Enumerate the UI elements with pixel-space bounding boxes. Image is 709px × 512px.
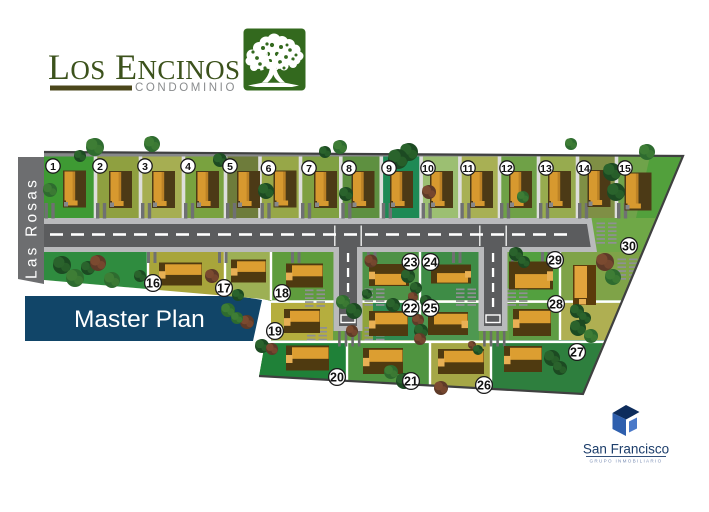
svg-text:11: 11	[462, 163, 473, 175]
svg-text:24: 24	[424, 256, 438, 270]
svg-text:30: 30	[622, 240, 636, 254]
svg-text:12: 12	[501, 163, 513, 175]
svg-text:Master Plan: Master Plan	[74, 306, 205, 333]
svg-text:25: 25	[424, 302, 438, 316]
svg-text:15: 15	[619, 163, 631, 175]
svg-text:LOS ENCINOS: LOS ENCINOS	[48, 47, 240, 87]
svg-text:1: 1	[50, 161, 56, 173]
svg-text:5: 5	[227, 161, 233, 173]
svg-text:7: 7	[306, 163, 312, 175]
svg-text:San Francisco: San Francisco	[583, 442, 669, 457]
svg-text:23: 23	[404, 256, 418, 270]
svg-text:17: 17	[217, 282, 231, 296]
svg-text:19: 19	[268, 325, 282, 339]
svg-text:13: 13	[540, 163, 552, 175]
svg-text:28: 28	[549, 298, 563, 312]
svg-text:9: 9	[386, 163, 392, 175]
svg-text:21: 21	[404, 375, 418, 389]
svg-text:29: 29	[548, 254, 562, 268]
svg-text:22: 22	[404, 302, 418, 316]
svg-text:18: 18	[275, 287, 289, 301]
svg-text:8: 8	[346, 163, 352, 175]
svg-text:26: 26	[477, 379, 491, 393]
svg-text:16: 16	[146, 277, 160, 291]
svg-text:27: 27	[570, 346, 584, 360]
svg-text:Las Rosas: Las Rosas	[23, 177, 40, 279]
svg-text:14: 14	[578, 163, 590, 175]
svg-text:CONDOMINIO: CONDOMINIO	[135, 82, 237, 94]
svg-text:6: 6	[266, 163, 272, 175]
svg-text:2: 2	[97, 161, 103, 173]
svg-text:20: 20	[330, 371, 344, 385]
svg-text:3: 3	[142, 161, 148, 173]
svg-text:10: 10	[422, 163, 434, 175]
svg-text:4: 4	[185, 161, 191, 173]
svg-text:GRUPO INMOBILIARIO: GRUPO INMOBILIARIO	[590, 459, 663, 464]
